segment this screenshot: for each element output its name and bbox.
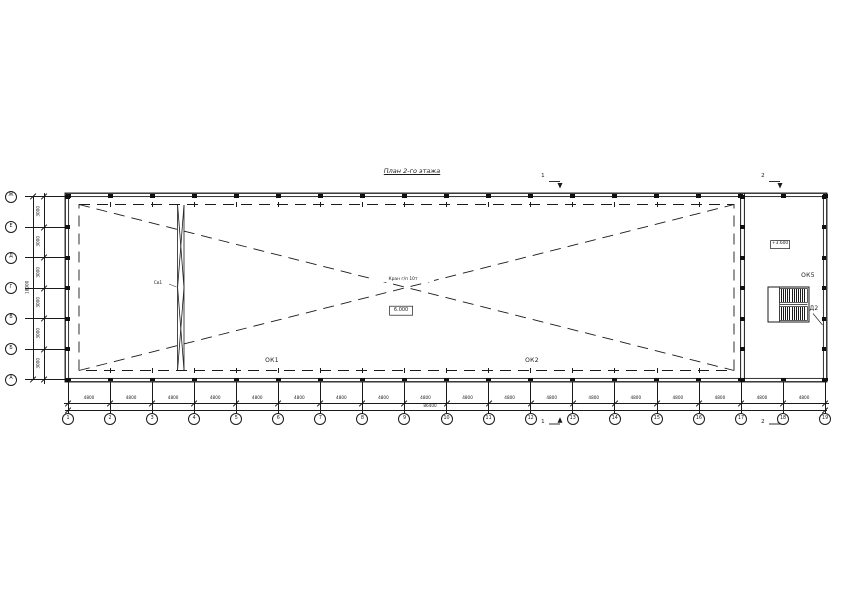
stair-tread-line bbox=[798, 289, 799, 302]
column-mark bbox=[65, 256, 69, 260]
column-mark bbox=[65, 378, 69, 382]
column-mark bbox=[781, 378, 786, 381]
axis-bubble-left: Г bbox=[5, 282, 17, 294]
stair-tread-line bbox=[800, 307, 801, 320]
column-mark bbox=[822, 347, 826, 351]
total-dimension-label: 18000 bbox=[26, 274, 31, 300]
column-mark bbox=[781, 194, 786, 197]
drawing-canvas: 4800148002480034800448005480064800748008… bbox=[0, 0, 842, 595]
glazing-tick bbox=[152, 368, 153, 373]
bay-dimension-label: 4800 bbox=[79, 396, 99, 401]
bay-dimension-label: 4800 bbox=[373, 396, 393, 401]
bay-dimension-label: 4800 bbox=[752, 396, 772, 401]
bay-dimension-label: 4800 bbox=[542, 396, 562, 401]
stair-tread-line bbox=[802, 289, 803, 302]
axis-bubble-bottom: 17 bbox=[735, 413, 747, 425]
stair-tread-line bbox=[796, 307, 797, 320]
axis-extension-line bbox=[530, 382, 531, 413]
stair-tread-line bbox=[787, 307, 788, 320]
column-mark bbox=[740, 286, 744, 290]
column-mark bbox=[740, 317, 744, 321]
bay-dimension-label: 4800 bbox=[626, 396, 646, 401]
axis-bubble-left: А bbox=[5, 374, 17, 386]
column-mark bbox=[192, 194, 197, 197]
column-mark bbox=[402, 194, 407, 197]
stair-tread-line bbox=[781, 289, 782, 302]
glazing-tick bbox=[657, 368, 658, 373]
axis-extension-line bbox=[236, 382, 237, 413]
column-mark bbox=[528, 378, 533, 381]
glazing-tick bbox=[278, 202, 279, 207]
stair-tread-line bbox=[789, 289, 790, 302]
glazing-tick bbox=[194, 202, 195, 207]
glazing-tick bbox=[194, 368, 195, 373]
section-mark-arrows bbox=[549, 182, 783, 425]
column-mark bbox=[108, 378, 113, 381]
axis-bubble-bottom: 1 bbox=[62, 413, 74, 425]
door-label: Д2 bbox=[806, 306, 822, 312]
column-mark bbox=[444, 378, 449, 381]
section-mark-label-bottom-left: 1 bbox=[538, 420, 548, 426]
stair-tread-line bbox=[800, 289, 801, 302]
glazing-tick bbox=[657, 202, 658, 207]
glazing-tick bbox=[488, 368, 489, 373]
axis-extension-line bbox=[320, 382, 321, 413]
brace-label: Св1 bbox=[149, 282, 167, 287]
column-mark bbox=[318, 194, 323, 197]
glazing-tick bbox=[699, 202, 700, 207]
column-mark bbox=[528, 194, 533, 197]
column-mark bbox=[570, 194, 575, 197]
column-mark bbox=[65, 347, 69, 351]
column-mark bbox=[360, 194, 365, 197]
section-mark-label-bottom-right: 2 bbox=[758, 420, 768, 426]
bay-dimension-label: 4800 bbox=[794, 396, 814, 401]
axis-bubble-bottom: 10 bbox=[441, 413, 453, 425]
axis-extension-line bbox=[152, 382, 153, 413]
axis-extension-line bbox=[404, 382, 405, 413]
stair-tread-line bbox=[792, 289, 793, 302]
bay-dimension-label: 3000 bbox=[36, 201, 41, 221]
glazing-tick bbox=[152, 202, 153, 207]
stair-tread-line bbox=[804, 289, 805, 302]
column-mark bbox=[65, 317, 69, 321]
section-mark-label-top-left: 1 bbox=[538, 174, 548, 180]
axis-extension-line bbox=[657, 382, 658, 413]
stair-tread-line bbox=[792, 307, 793, 320]
column-mark bbox=[402, 378, 407, 381]
bay-dimension-label: 3000 bbox=[36, 354, 41, 374]
vertical-brace bbox=[169, 205, 184, 370]
glazing-tick bbox=[614, 368, 615, 373]
right-elevation-value: +3.600 bbox=[771, 242, 790, 247]
bay-dimension-label: 4800 bbox=[416, 396, 436, 401]
stair-tread-line bbox=[794, 289, 795, 302]
axis-bubble-left: Ж bbox=[5, 191, 17, 203]
column-mark bbox=[192, 378, 197, 381]
glazing-tick bbox=[236, 368, 237, 373]
axis-extension-line bbox=[362, 382, 363, 413]
column-mark bbox=[276, 194, 281, 197]
glazing-tick bbox=[320, 202, 321, 207]
axis-bubble-left: Е bbox=[5, 221, 17, 233]
stair-tread-line bbox=[802, 307, 803, 320]
drawing-title: План 2-го этажа bbox=[372, 167, 452, 175]
bay-dimension-label: 4800 bbox=[163, 396, 183, 401]
axis-extension-line bbox=[488, 382, 489, 413]
column-mark bbox=[740, 195, 744, 199]
column-mark bbox=[276, 378, 281, 381]
column-mark bbox=[65, 195, 69, 199]
glazing-tick bbox=[488, 202, 489, 207]
glazing-tick bbox=[446, 368, 447, 373]
bay-dimension-line bbox=[44, 193, 45, 384]
axis-extension-line bbox=[110, 382, 111, 413]
column-mark bbox=[612, 378, 617, 381]
column-mark bbox=[65, 286, 69, 290]
glazing-tick bbox=[530, 368, 531, 373]
glazing-tick bbox=[572, 368, 573, 373]
column-mark bbox=[822, 286, 826, 290]
bay-dimension-label: 3000 bbox=[36, 323, 41, 343]
column-mark bbox=[822, 317, 826, 321]
drawing-svg bbox=[0, 0, 842, 595]
elevation-boxes bbox=[390, 241, 790, 316]
stair-tread-line bbox=[783, 289, 784, 302]
axis-bubble-bottom: 14 bbox=[609, 413, 621, 425]
axis-extension-line bbox=[783, 382, 784, 413]
total-dimension-label: 86400 bbox=[410, 404, 450, 409]
column-mark bbox=[318, 378, 323, 381]
total-dimension-line bbox=[65, 410, 827, 411]
axis-bubble-bottom: 19 bbox=[819, 413, 831, 425]
total-dimension-line bbox=[33, 197, 34, 380]
axis-extension-line bbox=[25, 257, 65, 258]
column-mark bbox=[822, 256, 826, 260]
glazing-tick bbox=[530, 202, 531, 207]
glazing-tick bbox=[362, 368, 363, 373]
glazing-tick bbox=[110, 368, 111, 373]
column-mark bbox=[108, 194, 113, 197]
axis-bubble-left: В bbox=[5, 313, 17, 325]
center-elevation-value: 6.000 bbox=[390, 308, 413, 314]
column-mark bbox=[150, 378, 155, 381]
axis-bubble-bottom: 15 bbox=[651, 413, 663, 425]
axis-bubble-bottom: 2 bbox=[104, 413, 116, 425]
column-mark bbox=[822, 195, 826, 199]
column-mark bbox=[740, 256, 744, 260]
column-mark bbox=[612, 194, 617, 197]
bay-dimension-label: 4800 bbox=[668, 396, 688, 401]
bay-dimension-label: 4800 bbox=[289, 396, 309, 401]
column-mark bbox=[444, 194, 449, 197]
column-mark bbox=[740, 378, 744, 382]
stair-tread-line bbox=[787, 289, 788, 302]
column-mark bbox=[696, 194, 701, 197]
axis-bubble-bottom: 18 bbox=[777, 413, 789, 425]
axis-extension-line bbox=[572, 382, 573, 413]
column-mark bbox=[696, 378, 701, 381]
axis-extension-line bbox=[699, 382, 700, 413]
bay-dimension-label: 4800 bbox=[458, 396, 478, 401]
bay-dimension-label: 4800 bbox=[710, 396, 730, 401]
glazing-tick bbox=[446, 202, 447, 207]
glazing-tick bbox=[614, 202, 615, 207]
glazing-tick bbox=[699, 368, 700, 373]
bay-dimension-label: 4800 bbox=[331, 396, 351, 401]
stair-tread-line bbox=[785, 289, 786, 302]
glazing-tick bbox=[110, 202, 111, 207]
bay-dimension-label: 4800 bbox=[584, 396, 604, 401]
glazing-tick bbox=[320, 368, 321, 373]
bay-dimension-label: 4800 bbox=[247, 396, 267, 401]
axis-extension-line bbox=[278, 382, 279, 413]
glazing-tick bbox=[572, 202, 573, 207]
stair-tread-line bbox=[789, 307, 790, 320]
axis-extension-line bbox=[614, 382, 615, 413]
column-mark bbox=[486, 378, 491, 381]
glazing-tick bbox=[404, 368, 405, 373]
column-mark bbox=[822, 378, 826, 382]
axis-extension-line bbox=[194, 382, 195, 413]
axis-extension-line bbox=[741, 382, 742, 413]
stair-tread-line bbox=[781, 307, 782, 320]
axis-bubble-bottom: 16 bbox=[693, 413, 705, 425]
axis-bubble-left: Д bbox=[5, 252, 17, 264]
column-mark bbox=[360, 378, 365, 381]
stair-tread-line bbox=[783, 307, 784, 320]
glazing-tick bbox=[278, 368, 279, 373]
column-mark bbox=[234, 194, 239, 197]
glazing-tick bbox=[404, 202, 405, 207]
axis-bubble-bottom: 12 bbox=[525, 413, 537, 425]
stair-tread-line bbox=[794, 307, 795, 320]
column-mark bbox=[740, 347, 744, 351]
column-mark bbox=[486, 194, 491, 197]
axis-bubble-bottom: 3 bbox=[146, 413, 158, 425]
stair-tread-line bbox=[804, 307, 805, 320]
window-label-ok2: ОК2 bbox=[517, 358, 547, 364]
window-label-ok5: ОК5 bbox=[796, 273, 820, 279]
column-mark bbox=[654, 378, 659, 381]
axis-bubble-left: Б bbox=[5, 343, 17, 355]
crane-note: Кран г/п 10т bbox=[372, 278, 434, 283]
column-mark bbox=[234, 378, 239, 381]
window-label-ok1: ОК1 bbox=[257, 358, 287, 364]
axis-extension-line bbox=[25, 318, 65, 319]
column-mark bbox=[822, 225, 826, 229]
column-mark bbox=[654, 194, 659, 197]
glazing-tick bbox=[236, 202, 237, 207]
column-mark bbox=[150, 194, 155, 197]
bay-dimension-label: 4800 bbox=[121, 396, 141, 401]
axis-bubble-bottom: 11 bbox=[483, 413, 495, 425]
column-mark bbox=[65, 225, 69, 229]
stair-tread-line bbox=[798, 307, 799, 320]
bay-dimension-label: 3000 bbox=[36, 293, 41, 313]
glazing-tick bbox=[362, 202, 363, 207]
bay-dimension-label: 3000 bbox=[36, 232, 41, 252]
section-mark-label-top-right: 2 bbox=[758, 174, 768, 180]
stair-tread-line bbox=[796, 289, 797, 302]
stair-tread-line bbox=[785, 307, 786, 320]
bay-dimension-label: 3000 bbox=[36, 262, 41, 282]
column-mark bbox=[570, 378, 575, 381]
building-walls bbox=[65, 193, 827, 382]
axis-bubble-bottom: 13 bbox=[567, 413, 579, 425]
bay-dimension-label: 4800 bbox=[500, 396, 520, 401]
column-mark bbox=[740, 225, 744, 229]
bay-dimension-label: 4800 bbox=[205, 396, 225, 401]
